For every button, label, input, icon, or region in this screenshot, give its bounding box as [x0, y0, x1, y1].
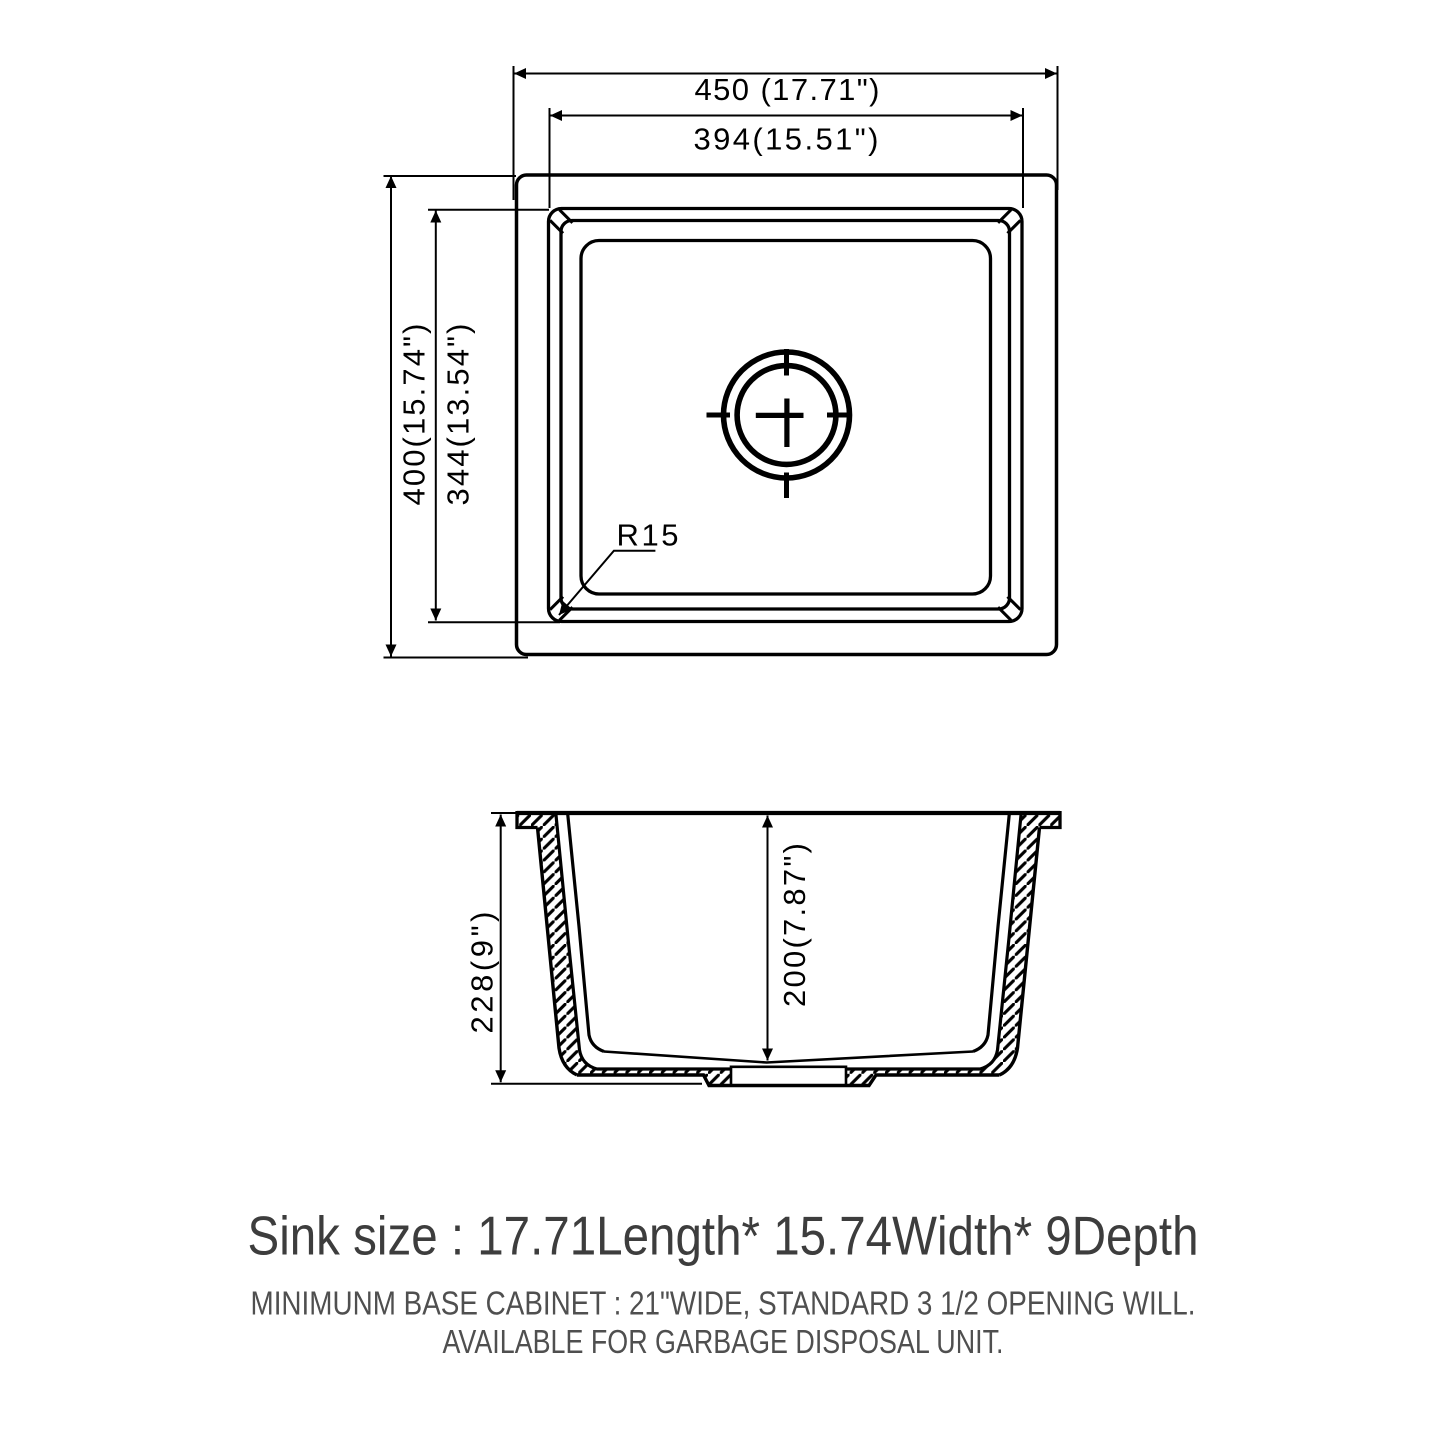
svg-text:R15: R15 [617, 518, 679, 553]
svg-text:AVAILABLE FOR GARBAGE DISPOSAL: AVAILABLE FOR GARBAGE DISPOSAL UNIT. [443, 1324, 1004, 1361]
svg-text:450 (17.71"): 450 (17.71") [695, 72, 880, 107]
svg-text:228(9"): 228(9") [465, 912, 500, 1034]
svg-text:Sink size : 17.71Length* 15.: Sink size : 17.71Length* 15.74Width* 9De… [248, 1205, 1199, 1267]
svg-text:400(15.74"): 400(15.74") [397, 324, 432, 506]
svg-text:MINIMUNM BASE CABINET : 21"WID: MINIMUNM BASE CABINET : 21"WIDE, STANDAR… [251, 1286, 1196, 1323]
svg-text:394(15.51"): 394(15.51") [694, 122, 879, 157]
svg-text:200(7.87"): 200(7.87") [777, 843, 812, 1007]
svg-text:344(13.54"): 344(13.54") [440, 324, 475, 506]
